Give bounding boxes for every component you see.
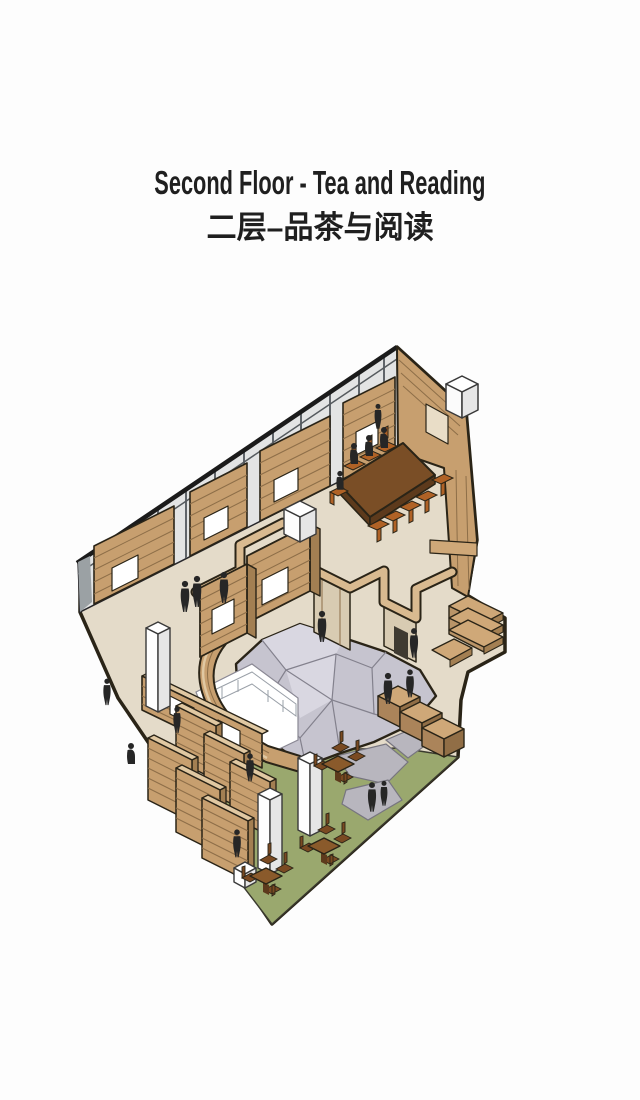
- axonometric-drawing: [0, 0, 640, 1100]
- parapet-band: [430, 540, 477, 556]
- page: { "header": { "title_en": "Second Floor …: [0, 0, 640, 1100]
- person-seated: [365, 435, 373, 456]
- glass-sliver: [78, 556, 92, 612]
- person-seated: [127, 743, 135, 764]
- person-seated: [380, 427, 388, 448]
- column: [146, 622, 170, 712]
- person-seated: [350, 443, 358, 464]
- skylight-cube: [446, 376, 478, 418]
- person-seated: [336, 471, 343, 490]
- skylight-cube-center: [284, 501, 316, 542]
